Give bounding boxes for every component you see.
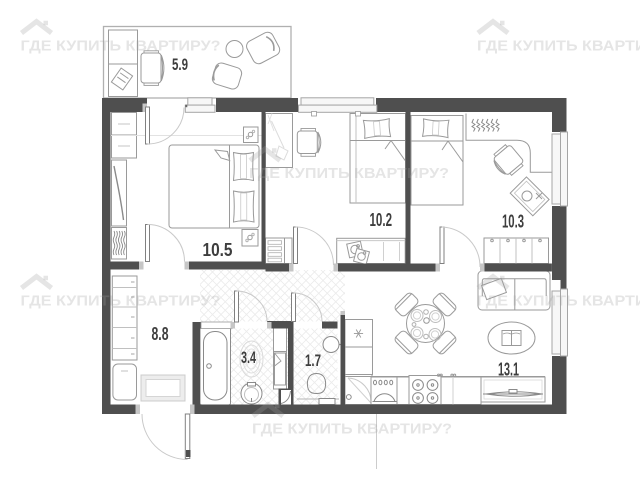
svg-text:10.5: 10.5 <box>203 239 233 260</box>
svg-text:ГДЕ КУПИТЬ КВАРТИРУ?: ГДЕ КУПИТЬ КВАРТИРУ? <box>21 39 221 55</box>
svg-text:10.2: 10.2 <box>370 209 393 230</box>
svg-text:10.3: 10.3 <box>502 211 524 232</box>
svg-text:ГДЕ КУПИТЬ КВАРТИРУ?: ГДЕ КУПИТЬ КВАРТИРУ? <box>477 39 640 55</box>
svg-text:ГДЕ КУПИТЬ КВАРТИРУ?: ГДЕ КУПИТЬ КВАРТИРУ? <box>252 422 452 438</box>
svg-text:ГДЕ КУПИТЬ КВАРТИРУ?: ГДЕ КУПИТЬ КВАРТИРУ? <box>21 294 221 310</box>
svg-text:1.7: 1.7 <box>305 351 321 370</box>
svg-text:ГДЕ КУПИТЬ КВАРТИРУ?: ГДЕ КУПИТЬ КВАРТИРУ? <box>249 166 449 182</box>
svg-text:3.4: 3.4 <box>241 348 256 367</box>
svg-text:13.1: 13.1 <box>498 359 519 380</box>
svg-text:5.9: 5.9 <box>172 55 188 74</box>
svg-text:ГДЕ КУПИТЬ КВАРТИРУ?: ГДЕ КУПИТЬ КВАРТИРУ? <box>477 294 640 310</box>
svg-text:8.8: 8.8 <box>152 324 169 344</box>
